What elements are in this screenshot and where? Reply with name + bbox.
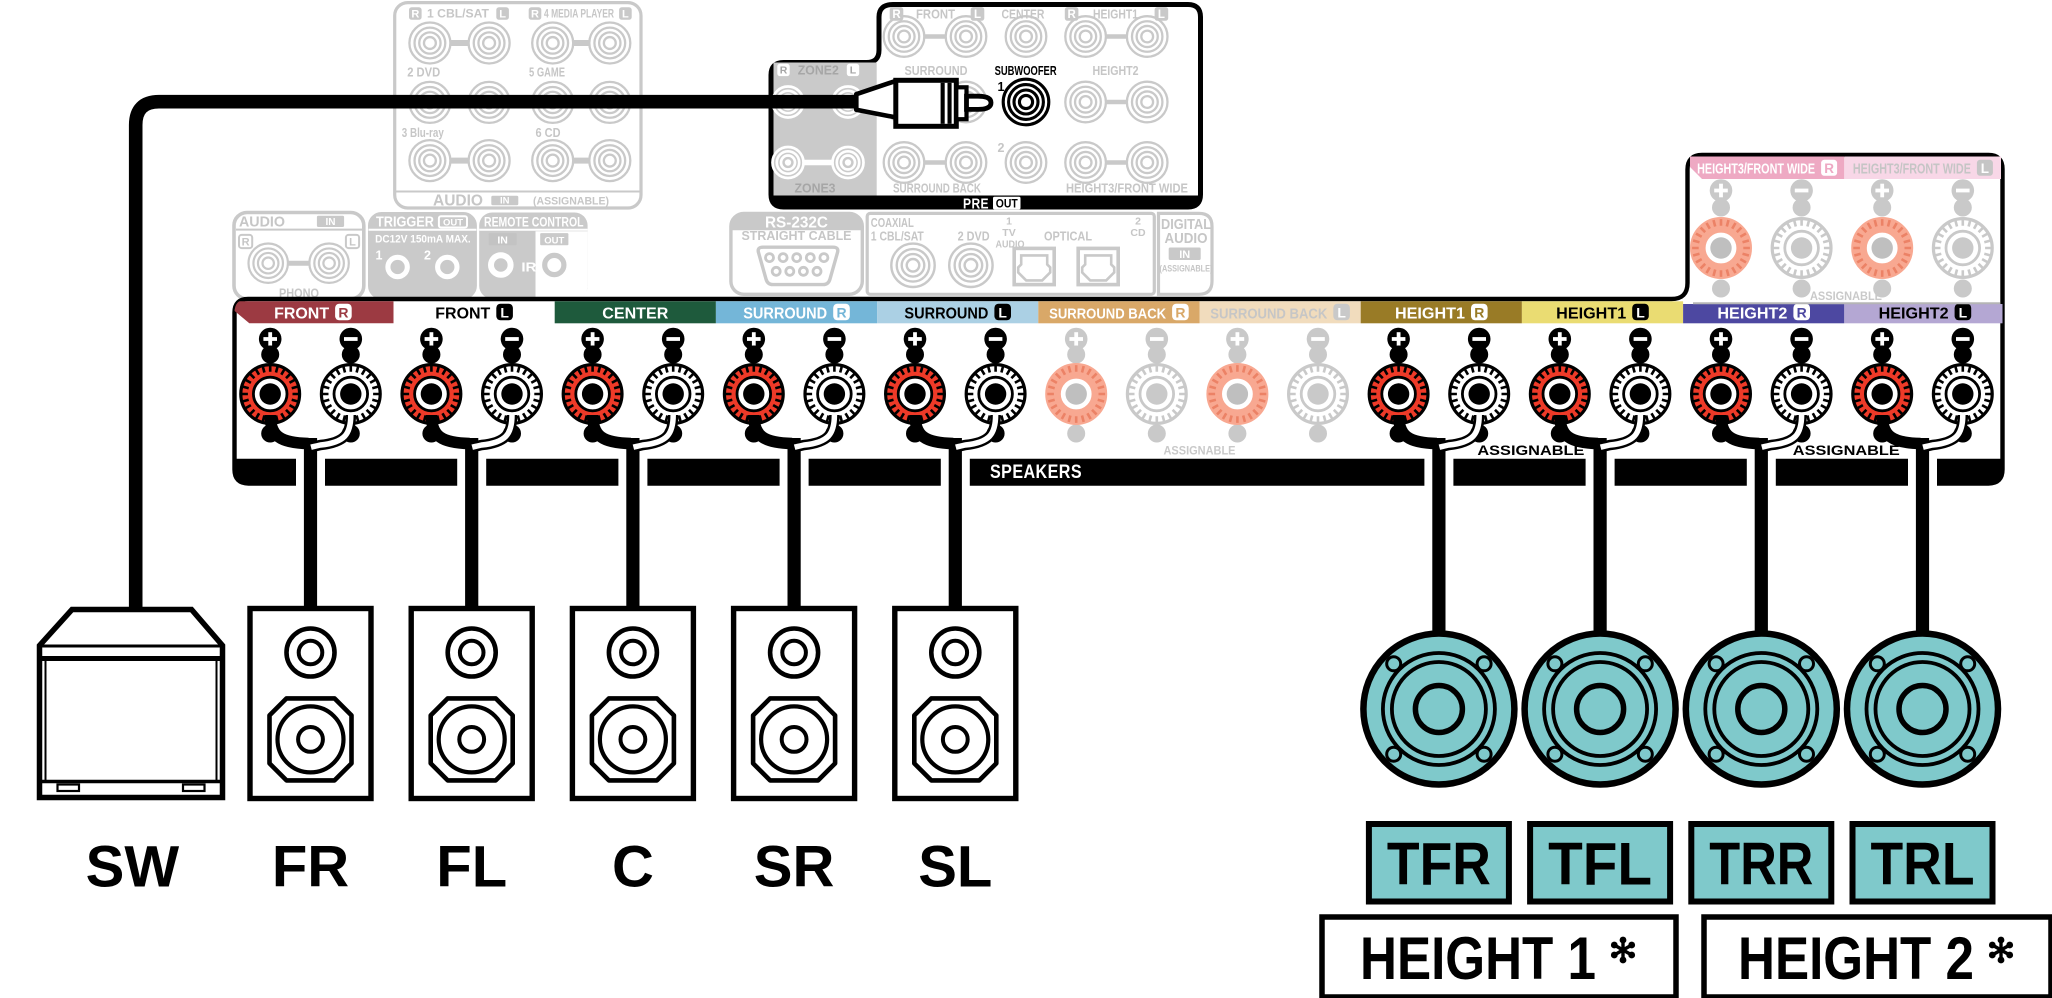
- svg-text:(ASSIGNABLE): (ASSIGNABLE): [533, 196, 609, 208]
- svg-text:2 DVD: 2 DVD: [958, 229, 990, 243]
- svg-text:HEIGHT1: HEIGHT1: [1556, 305, 1626, 322]
- svg-text:R: R: [1474, 305, 1484, 321]
- svg-text:R: R: [1175, 305, 1185, 321]
- svg-text:SUBWOOFER: SUBWOOFER: [995, 63, 1057, 78]
- svg-text:FRONT: FRONT: [274, 305, 330, 322]
- svg-text:SW: SW: [86, 835, 180, 900]
- svg-text:2: 2: [424, 248, 431, 262]
- svg-text:AUDIO: AUDIO: [239, 214, 285, 231]
- svg-text:SL: SL: [918, 835, 992, 900]
- svg-text:AUDIO: AUDIO: [1165, 230, 1208, 247]
- svg-text:ASSIGNABLE: ASSIGNABLE: [1477, 443, 1584, 458]
- svg-text:TRIGGER: TRIGGER: [376, 215, 434, 231]
- svg-text:4 MEDIA PLAYER: 4 MEDIA PLAYER: [544, 7, 614, 21]
- svg-text:DC12V 150mA MAX.: DC12V 150mA MAX.: [375, 234, 471, 246]
- svg-text:L: L: [622, 8, 629, 20]
- svg-text:1 CBL/SAT: 1 CBL/SAT: [871, 229, 924, 243]
- svg-text:1 CBL/SAT: 1 CBL/SAT: [427, 7, 490, 21]
- svg-text:6 CD: 6 CD: [536, 126, 561, 140]
- svg-text:FRONT: FRONT: [435, 305, 491, 322]
- svg-text:3 Blu-ray: 3 Blu-ray: [402, 126, 444, 140]
- svg-text:IR: IR: [521, 260, 537, 275]
- svg-text:R: R: [1824, 161, 1834, 176]
- svg-text:COAXIAL: COAXIAL: [871, 216, 914, 230]
- svg-text:R: R: [892, 9, 901, 21]
- svg-text:HEIGHT2: HEIGHT2: [1093, 64, 1139, 78]
- svg-text:SPEAKERS: SPEAKERS: [990, 461, 1082, 483]
- svg-text:TFR: TFR: [1387, 831, 1491, 898]
- svg-text:1: 1: [376, 248, 383, 262]
- svg-text:SURROUND BACK: SURROUND BACK: [1049, 306, 1166, 322]
- svg-text:R: R: [338, 305, 348, 321]
- svg-text:HEIGHT3/FRONT WIDE: HEIGHT3/FRONT WIDE: [1853, 161, 1971, 177]
- svg-text:L: L: [1981, 161, 1989, 176]
- svg-text:IN: IN: [497, 234, 508, 246]
- svg-text:2: 2: [1135, 216, 1141, 228]
- svg-text:SURROUND: SURROUND: [904, 305, 988, 322]
- svg-text:R: R: [780, 65, 788, 77]
- svg-text:REMOTE CONTROL: REMOTE CONTROL: [484, 215, 584, 230]
- svg-text:1: 1: [1006, 216, 1012, 228]
- svg-text:OPTICAL: OPTICAL: [1044, 229, 1092, 243]
- svg-text:C: C: [612, 835, 654, 900]
- svg-text:ZONE2: ZONE2: [798, 63, 839, 78]
- svg-text:L: L: [349, 236, 356, 248]
- svg-text:FRONT: FRONT: [916, 8, 955, 22]
- svg-text:TRL: TRL: [1871, 831, 1975, 898]
- svg-text:CD: CD: [1130, 227, 1146, 239]
- svg-text:IN: IN: [326, 217, 336, 228]
- svg-text:HEIGHT 2: HEIGHT 2: [1738, 925, 1974, 992]
- svg-text:SURROUND: SURROUND: [743, 305, 827, 322]
- svg-text:HEIGHT 1: HEIGHT 1: [1360, 925, 1596, 992]
- svg-text:(ASSIGNABLE): (ASSIGNABLE): [1160, 264, 1213, 275]
- svg-text:PRE: PRE: [963, 196, 989, 212]
- svg-text:ASSIGNABLE: ASSIGNABLE: [1164, 445, 1236, 457]
- svg-text:L: L: [974, 9, 981, 21]
- svg-text:CENTER: CENTER: [602, 305, 668, 322]
- svg-text:TRR: TRR: [1709, 831, 1813, 898]
- svg-text:ZONE3: ZONE3: [795, 181, 836, 196]
- svg-text:L: L: [998, 305, 1007, 321]
- svg-text:TFL: TFL: [1548, 831, 1652, 898]
- svg-text:L: L: [850, 65, 857, 77]
- svg-text:SURROUND BACK: SURROUND BACK: [893, 182, 981, 196]
- svg-text:2: 2: [998, 141, 1005, 155]
- svg-text:L: L: [1636, 305, 1645, 321]
- svg-text:R: R: [1067, 9, 1076, 21]
- svg-text:5 GAME: 5 GAME: [529, 66, 565, 80]
- svg-text:ASSIGNABLE: ASSIGNABLE: [1810, 291, 1882, 303]
- svg-text:L: L: [499, 8, 506, 20]
- svg-text:CENTER: CENTER: [1002, 8, 1045, 22]
- svg-text:R: R: [531, 8, 539, 20]
- svg-text:L: L: [1158, 9, 1165, 21]
- svg-text:HEIGHT3/FRONT WIDE: HEIGHT3/FRONT WIDE: [1066, 182, 1188, 196]
- svg-text:ASSIGNABLE: ASSIGNABLE: [1793, 443, 1900, 458]
- svg-text:L: L: [1959, 305, 1968, 321]
- svg-text:OUT: OUT: [544, 235, 564, 246]
- svg-text:HEIGHT1: HEIGHT1: [1093, 8, 1138, 22]
- svg-text:HEIGHT2: HEIGHT2: [1717, 305, 1787, 322]
- svg-text:SURROUND BACK: SURROUND BACK: [1210, 306, 1327, 322]
- svg-text:OUT: OUT: [996, 198, 1018, 210]
- svg-text:OUT: OUT: [443, 218, 463, 229]
- svg-text:AUDIO: AUDIO: [433, 193, 483, 210]
- svg-text:2 DVD: 2 DVD: [407, 66, 440, 80]
- svg-text:L: L: [1337, 305, 1346, 321]
- svg-text:IN: IN: [500, 196, 510, 207]
- svg-text:SURROUND: SURROUND: [905, 64, 968, 78]
- svg-text:HEIGHT2: HEIGHT2: [1879, 305, 1949, 322]
- svg-text:1: 1: [998, 80, 1005, 94]
- svg-text:R: R: [1797, 305, 1807, 321]
- svg-text:R: R: [836, 305, 846, 321]
- svg-text:FR: FR: [272, 835, 349, 900]
- svg-text:FL: FL: [436, 835, 507, 900]
- svg-text:R: R: [411, 8, 419, 20]
- svg-text:R: R: [242, 236, 250, 248]
- svg-text:HEIGHT3/FRONT WIDE: HEIGHT3/FRONT WIDE: [1697, 161, 1815, 177]
- svg-text:STRAIGHT CABLE: STRAIGHT CABLE: [742, 228, 852, 243]
- svg-text:TV: TV: [1002, 227, 1015, 239]
- svg-text:IN: IN: [1179, 249, 1190, 261]
- svg-text:L: L: [500, 305, 509, 321]
- svg-text:SR: SR: [754, 835, 835, 900]
- svg-text:HEIGHT1: HEIGHT1: [1395, 305, 1465, 322]
